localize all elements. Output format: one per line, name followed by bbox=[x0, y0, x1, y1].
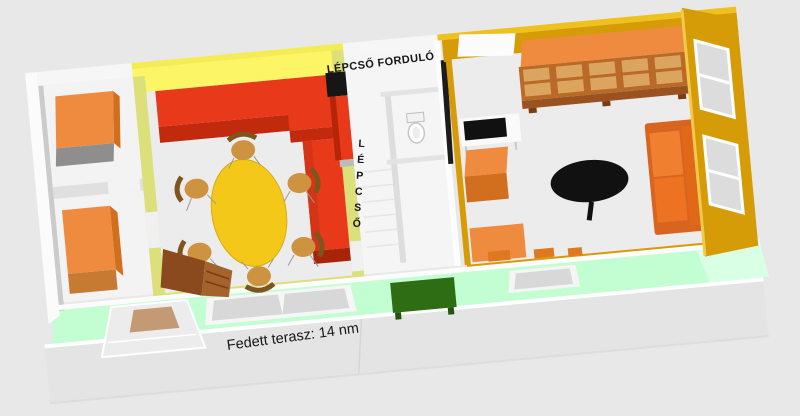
entrance-steps bbox=[97, 299, 205, 357]
left-wardrobe-bottom bbox=[62, 205, 125, 294]
right-room bbox=[437, 3, 759, 280]
toilet-icon bbox=[406, 112, 426, 143]
orange-cube bbox=[462, 146, 513, 202]
floorplan-scene: LÉPCSŐ FORDULÓ LÉPCSŐ Fedett terasz: 14 … bbox=[0, 0, 800, 416]
living-room bbox=[132, 43, 370, 304]
cooktop bbox=[463, 118, 507, 141]
door-mat bbox=[128, 306, 180, 333]
right-wall-window bbox=[695, 38, 734, 121]
right-wall-window bbox=[704, 133, 743, 216]
